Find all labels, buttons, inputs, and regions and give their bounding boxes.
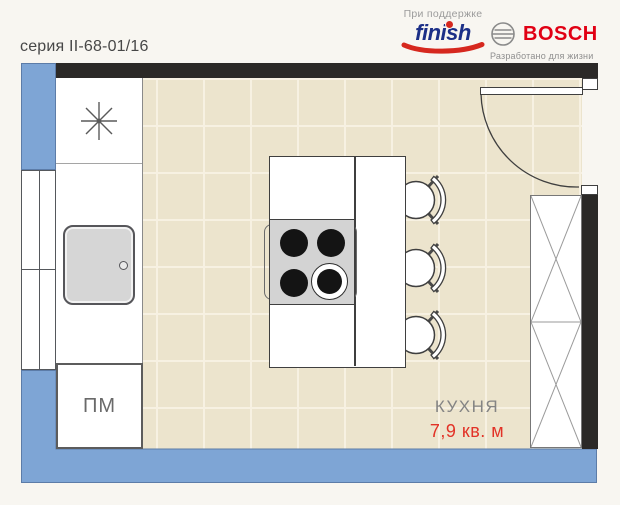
balcony-wall-segment-top — [21, 63, 56, 170]
finish-wordmark-text: finish — [415, 20, 471, 45]
dishwasher-box: ПМ — [56, 363, 143, 449]
room-area-value: 7,9 кв. м — [392, 421, 542, 442]
burner-icon — [280, 229, 308, 257]
fridge-unit — [56, 78, 142, 164]
sink-basin — [63, 225, 135, 305]
dishwasher-label: ПМ — [83, 395, 116, 418]
finish-logo-block: При поддержке finish — [399, 8, 487, 54]
room-info: КУХНЯ 7,9 кв. м — [392, 397, 542, 442]
door-jamb — [581, 185, 598, 195]
room-name-label: КУХНЯ — [392, 397, 542, 417]
door-leaf — [480, 87, 583, 95]
window-frame-divider — [22, 269, 55, 270]
top-wall — [56, 63, 598, 78]
kitchen-counter-run: ПМ — [56, 78, 143, 449]
window-frame-line — [39, 171, 40, 369]
series-title: серия II-68-01/16 — [20, 38, 149, 56]
bosch-armature-icon — [490, 21, 516, 47]
bosch-wordmark: BOSCH — [523, 24, 598, 44]
sink-drain-icon — [119, 261, 128, 270]
window — [21, 170, 56, 370]
finish-logo: finish — [415, 22, 471, 44]
burner-with-ring-icon — [311, 263, 348, 300]
bosch-logo-block: BOSCH Разработано для жизни — [490, 21, 602, 61]
burner-icon — [317, 269, 342, 294]
right-wall — [582, 195, 598, 449]
bosch-tagline: Разработано для жизни — [490, 51, 602, 61]
burner-icon — [280, 269, 308, 297]
cooktop — [269, 219, 355, 305]
supported-by-label: При поддержке — [399, 8, 487, 20]
burner-icon — [317, 229, 345, 257]
kitchen-floorplan: ПМ — [21, 63, 598, 483]
door-jamb — [582, 78, 598, 90]
fridge-snowflake-icon — [77, 99, 121, 143]
